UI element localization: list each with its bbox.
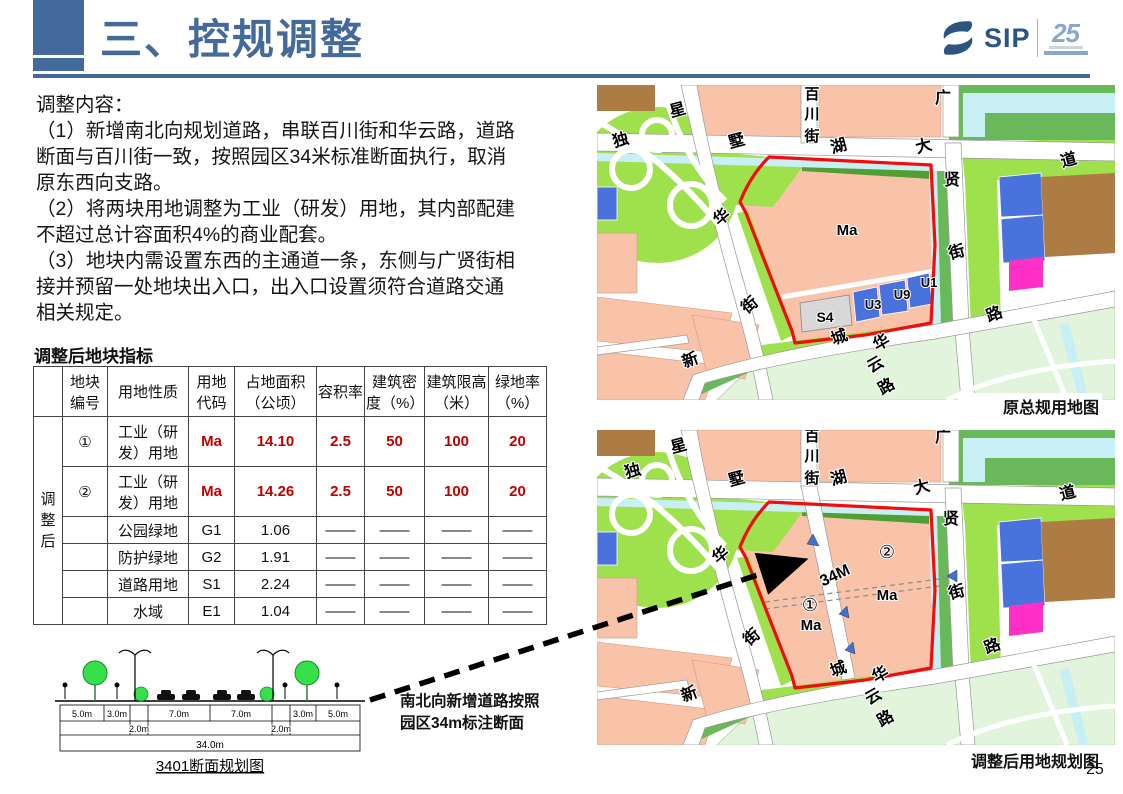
section-caption: 3401断面规划图 [156,758,264,775]
cell: 14.26 [235,467,317,517]
arrow-note-line: 园区34m标注断面 [400,713,540,735]
map-label: 百 [804,430,819,445]
title-rule [33,74,1090,78]
map-label: S4 [816,309,833,325]
map-label: 百 [804,86,819,103]
map-label: 5.0m [328,709,348,719]
sip-logo-text: SIP [984,23,1031,54]
cell: G2 [189,544,235,571]
content-line: （3）地块内需设置东西的主通道一条，东侧与广贤街相 [36,248,602,274]
cell: 公园绿地 [108,517,189,544]
tree-icon [83,661,319,701]
cell: —— [425,517,489,544]
table-row: 防护绿地 G2 1.91 —— —— —— —— [34,544,547,571]
car-icon [157,690,255,700]
table-header-row: 地块编号 用地性质 用地代码 占地面积（公顷） 容积率 建筑密度（%） 建筑限高… [34,367,547,417]
map-label: Ma [801,617,822,634]
cell: 工业（研发）用地 [108,467,189,517]
cell [63,598,108,625]
map-label: 贤 [943,510,959,528]
cell: 14.10 [235,417,317,467]
cell: 50 [365,467,425,517]
cell: —— [489,571,547,598]
map-label: 2.0m [129,724,149,734]
header-cell: 用地代码 [189,367,235,417]
logo-divider [1037,19,1038,57]
pedestrian-icon [63,683,339,699]
cell: 50 [365,417,425,467]
map-label: 3.0m [293,709,313,719]
table-row: 调整后 ① 工业（研发）用地 Ma 14.10 2.5 50 100 20 [34,417,547,467]
cell: —— [365,571,425,598]
table-title: 调整后地块指标 [34,342,153,367]
cell: —— [425,571,489,598]
cell: Ma [189,467,235,517]
map-label: 川 [803,448,819,465]
cell: 防护绿地 [108,544,189,571]
header-cell: 容积率 [317,367,365,417]
title-accent-square [33,0,84,55]
cell: ① [63,417,108,467]
map-label: 7.0m [231,709,251,719]
map-label: Ma [877,587,898,604]
map-label: 贤 [944,171,960,189]
header-cell: 绿地率（%） [489,367,547,417]
table-row: 道路用地 S1 2.24 —— —— —— —— [34,571,547,598]
cell: 100 [425,467,489,517]
cell: 20 [489,417,547,467]
cell: —— [365,598,425,625]
cell: 道路用地 [108,571,189,598]
content-line: 断面与百川街一致，按照园区34米标准断面执行，取消 [36,144,602,170]
cell: 2.24 [235,571,317,598]
cell: —— [489,517,547,544]
cell: —— [365,544,425,571]
indicator-table: 地块编号 用地性质 用地代码 占地面积（公顷） 容积率 建筑密度（%） 建筑限高… [33,366,547,625]
cell: —— [425,544,489,571]
cell: —— [317,571,365,598]
logo-25-badge: 25 [1044,21,1088,55]
map-label: 2.0m [271,724,291,734]
cell [63,517,108,544]
content-line: 调整内容： [36,92,602,118]
map-label: 街 [803,127,819,145]
group-label: 调整后 [41,489,56,552]
cell: 20 [489,467,547,517]
map-label: U9 [894,287,911,302]
content-line: （2）将两块用地调整为工业（研发）用地，其内部配建 [36,196,602,222]
header-cell: 地块编号 [63,367,108,417]
table-row: 公园绿地 G1 1.06 —— —— —— —— [34,517,547,544]
cell: 1.06 [235,517,317,544]
content-line: 不超过总计容面积4%的商业配套。 [36,222,602,248]
road-section-diagram: 5.0m3.0m7.0m7.0m3.0m5.0m2.0m2.0m34.0m 34… [45,643,375,793]
cell: —— [425,598,489,625]
cell: 工业（研发）用地 [108,417,189,467]
map-label: 5.0m [72,709,92,719]
cell: —— [365,517,425,544]
table-row: 水域 E1 1.04 —— —— —— —— [34,598,547,625]
map-label: U1 [921,275,938,290]
map-label: 川 [803,106,819,123]
title-accent-bar [33,58,84,71]
cell: S1 [189,571,235,598]
map-label: 34.0m [196,740,224,751]
map-label: ② [879,542,895,562]
table-row: ② 工业（研发）用地 Ma 14.26 2.5 50 100 20 [34,467,547,517]
logo-fine-print-bar2 [1044,51,1088,55]
map-adjusted-plan: 星独墅百川街湖大道广贤街华街新城华云路路②34MMa①Ma [597,430,1115,745]
cell [63,544,108,571]
sip-swoosh-icon [938,17,978,59]
cell: ② [63,467,108,517]
content-line: （1）新增南北向规划道路，串联百川街和华云路，道路 [36,118,602,144]
arrow-note: 南北向新增道路按照园区34m标注断面 [400,691,540,735]
map-label: Ma [837,222,858,239]
logo-fine-print-bar [1049,46,1083,49]
cell: 2.5 [317,467,365,517]
map-caption-original: 原总规用地图 [958,393,1102,419]
cell [63,571,108,598]
header-cell: 占地面积（公顷） [235,367,317,417]
cell: G1 [189,517,235,544]
arrow-note-line: 南北向新增道路按照 [400,691,540,713]
header-cell [34,367,63,417]
cell: 水域 [108,598,189,625]
map-label: 3.0m [107,709,127,719]
map-label: U3 [865,297,882,312]
map-label: 广 [935,430,951,446]
cell: 1.91 [235,544,317,571]
content-line: 接并预留一处地块出入口，出入口设置须符合道路交通 [36,274,602,300]
map-label: ① [802,595,818,615]
map-label: 街 [803,469,819,487]
logo-25-number: 25 [1052,21,1079,45]
cell: 1.04 [235,598,317,625]
cell: E1 [189,598,235,625]
slide: 三、控规调整 SIP 25 调整内容：（1）新增南北向规划道路，串联百川街和华云… [0,0,1123,794]
sip-logo: SIP 25 [938,12,1113,64]
map-caption-adjusted: 调整后用地规划图 [938,747,1102,773]
map-original-plan: 星独墅百川街湖大道广贤街Ma华街S4U3U9U1新城华云路路 [597,85,1115,400]
cell: 2.5 [317,417,365,467]
cell: —— [317,598,365,625]
content-line: 原东西向支路。 [36,170,602,196]
map-label: 广 [935,88,951,107]
map-label: 7.0m [169,709,189,719]
cell: 100 [425,417,489,467]
cell: Ma [189,417,235,467]
header-cell: 用地性质 [108,367,189,417]
cell: —— [317,544,365,571]
cell: —— [317,517,365,544]
page-number: 25 [1086,761,1104,779]
cell: —— [489,544,547,571]
header-cell: 建筑密度（%） [365,367,425,417]
content-line: 相关规定。 [36,300,602,326]
header-cell: 建筑限高（米） [425,367,489,417]
slide-title: 三、控规调整 [100,6,364,67]
adjustment-content: 调整内容：（1）新增南北向规划道路，串联百川街和华云路，道路断面与百川街一致，按… [36,92,602,326]
group-label-cell: 调整后 [34,417,63,625]
cell: —— [489,598,547,625]
